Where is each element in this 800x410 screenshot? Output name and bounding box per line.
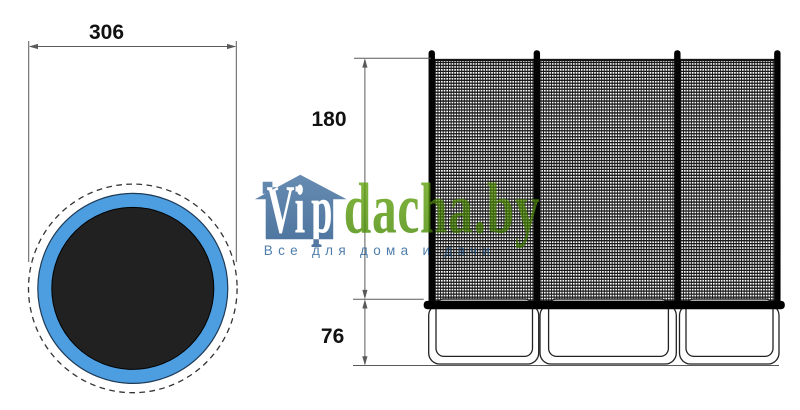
svg-text:306: 306 <box>89 21 124 44</box>
svg-text:i: i <box>295 172 306 249</box>
svg-text:76: 76 <box>321 325 344 348</box>
svg-text:180: 180 <box>311 108 346 131</box>
